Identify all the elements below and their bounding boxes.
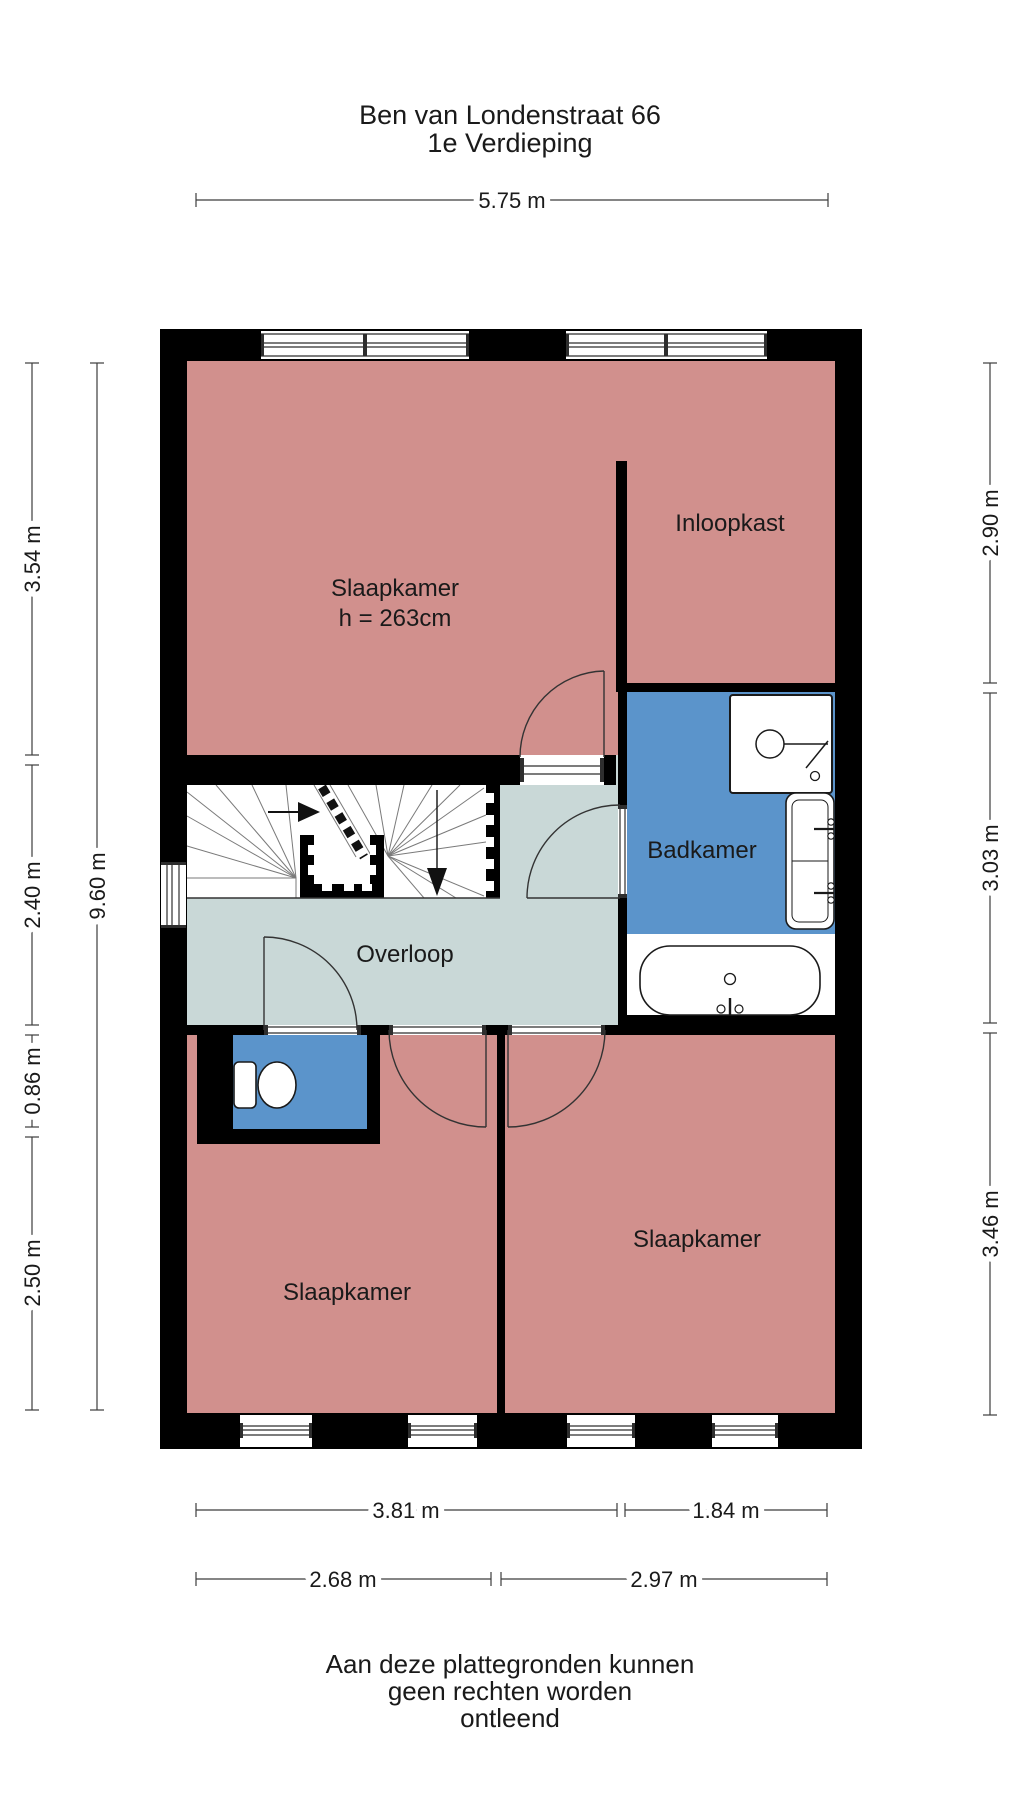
double-sink-fixture <box>786 793 834 929</box>
threshold-bedroom-left <box>389 1025 486 1035</box>
threshold-toilet <box>264 1025 361 1035</box>
svg-text:3.46 m: 3.46 m <box>978 1190 1003 1257</box>
disclaimer-line-1: Aan deze plattegronden kunnen <box>326 1649 695 1679</box>
wall-closet-west <box>616 461 627 692</box>
svg-text:2.97 m: 2.97 m <box>630 1567 697 1592</box>
window-left-landing <box>161 862 186 928</box>
threshold-bathroom <box>618 805 627 898</box>
address-title: Ben van Londenstraat 66 <box>359 100 661 130</box>
window-top-left <box>261 331 469 359</box>
bathtub-fixture <box>640 946 820 1015</box>
label-landing: Overloop <box>356 941 453 968</box>
window-bottom-3 <box>567 1415 635 1447</box>
label-bedroom-bottom-left: Slaapkamer <box>283 1279 411 1306</box>
dimension-right-segments: 2.90 m 3.03 m 3.46 m <box>978 363 1003 1415</box>
dimension-left-segments: 3.54 m 2.40 m 0.86 m 2.50 m <box>20 363 45 1410</box>
threshold-bedroom-top <box>520 755 604 785</box>
dimension-bottom-row2: 2.68 m 2.97 m <box>196 1567 827 1592</box>
window-top-right <box>566 331 767 359</box>
disclaimer-line-3: ontleend <box>460 1703 560 1733</box>
svg-text:9.60 m: 9.60 m <box>85 852 110 919</box>
staircase <box>187 785 500 898</box>
dimension-left-total: 9.60 m <box>85 363 110 1410</box>
svg-text:1.84 m: 1.84 m <box>692 1498 759 1523</box>
wall-exterior-right <box>835 329 862 1449</box>
label-bedroom-top: Slaapkamer <box>331 575 459 602</box>
dimension-bottom-row1: 3.81 m 1.84 m <box>196 1498 827 1523</box>
wall-toilet-east <box>367 1035 380 1129</box>
svg-text:3.03 m: 3.03 m <box>978 824 1003 891</box>
toilet-fixture <box>234 1062 296 1108</box>
svg-text:2.40 m: 2.40 m <box>20 861 45 928</box>
floor-subtitle: 1e Verdieping <box>427 128 592 158</box>
svg-text:3.81 m: 3.81 m <box>372 1498 439 1523</box>
label-bathroom: Badkamer <box>647 837 756 864</box>
wall-bedroom-divider <box>497 1035 505 1413</box>
floor-plan-page: Ben van Londenstraat 66 1e Verdieping <box>0 0 1024 1820</box>
svg-text:5.75 m: 5.75 m <box>478 188 545 213</box>
wall-bathroom-south <box>618 1015 835 1035</box>
wall-toilet-west <box>197 1025 233 1144</box>
dimension-top-total: 5.75 m <box>196 188 828 213</box>
svg-text:2.90 m: 2.90 m <box>978 489 1003 556</box>
svg-text:2.50 m: 2.50 m <box>20 1239 45 1306</box>
window-bottom-1 <box>240 1415 312 1447</box>
label-bedroom-top-height: h = 263cm <box>339 605 452 632</box>
window-bottom-4 <box>712 1415 778 1447</box>
shower-fixture <box>730 695 832 793</box>
stair-balustrade <box>486 785 500 898</box>
floor-plan-drawing: Ben van Londenstraat 66 1e Verdieping <box>0 0 1024 1820</box>
wall-closet-south <box>627 683 835 692</box>
disclaimer-line-2: geen rechten worden <box>388 1676 632 1706</box>
disclaimer: Aan deze plattegronden kunnen geen recht… <box>326 1649 695 1733</box>
wall-toilet-south <box>197 1129 380 1144</box>
window-bottom-2 <box>408 1415 477 1447</box>
threshold-bedroom-right <box>508 1025 605 1035</box>
svg-text:3.54 m: 3.54 m <box>20 525 45 592</box>
svg-text:0.86 m: 0.86 m <box>20 1047 45 1114</box>
svg-text:2.68 m: 2.68 m <box>309 1567 376 1592</box>
label-bedroom-bottom-right: Slaapkamer <box>633 1226 761 1253</box>
plan-title: Ben van Londenstraat 66 1e Verdieping <box>359 100 661 158</box>
label-walk-in-closet: Inloopkast <box>675 510 785 537</box>
